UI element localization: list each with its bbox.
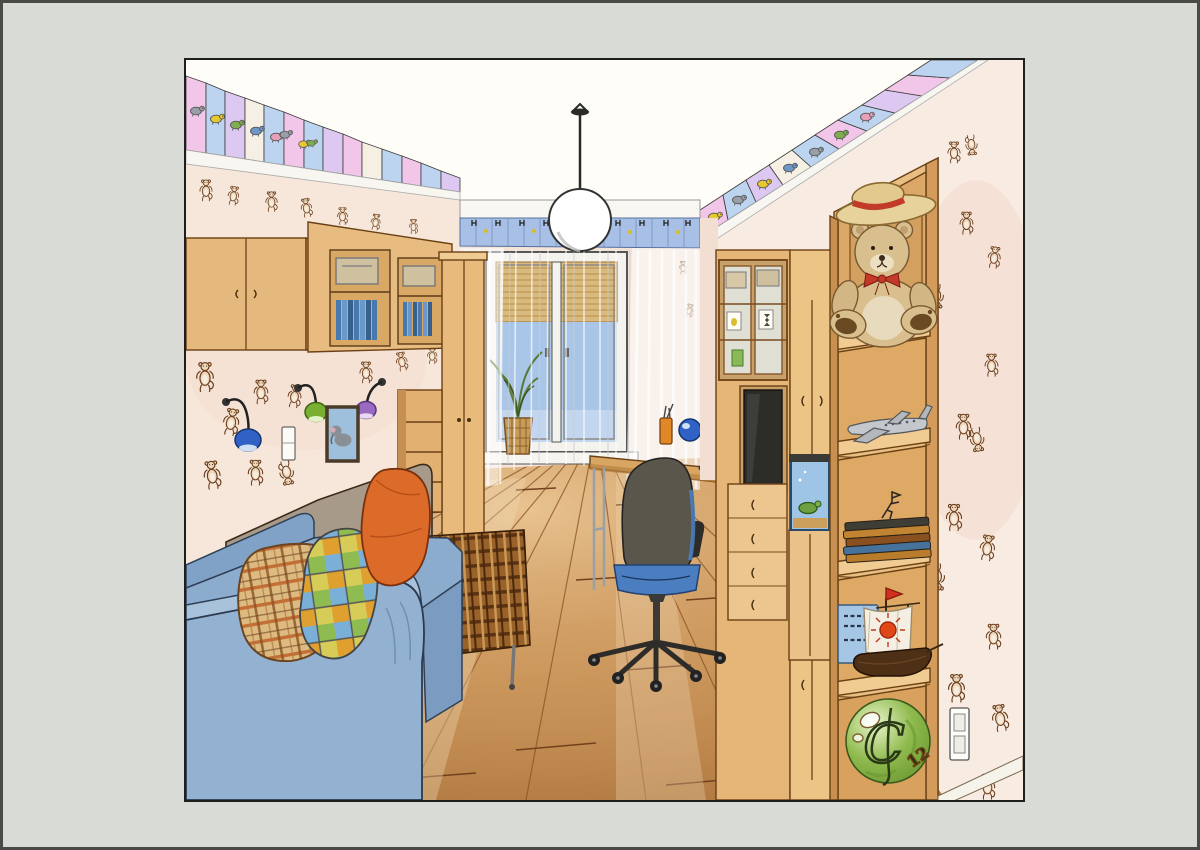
right-wall-unit: C 12	[700, 158, 943, 800]
pillow-orange	[362, 469, 431, 586]
room-sketch-drawing: C 12	[184, 58, 1025, 802]
power-outlet	[950, 708, 969, 760]
tall-wardrobe	[439, 252, 487, 580]
elephant-picture-frame	[327, 407, 358, 461]
ball-monogram: C	[863, 712, 904, 775]
glass-display-cabinet	[719, 260, 787, 380]
page-background: C 12	[0, 0, 1200, 850]
desk-pedestal	[728, 484, 787, 620]
tv	[740, 386, 787, 492]
room-sketch-svg: C 12	[186, 60, 1023, 800]
pendant-lamp	[549, 104, 611, 251]
light-switch	[282, 427, 295, 460]
open-niche-1	[330, 250, 390, 346]
open-niche-2	[398, 258, 446, 344]
aquarium	[789, 454, 831, 660]
